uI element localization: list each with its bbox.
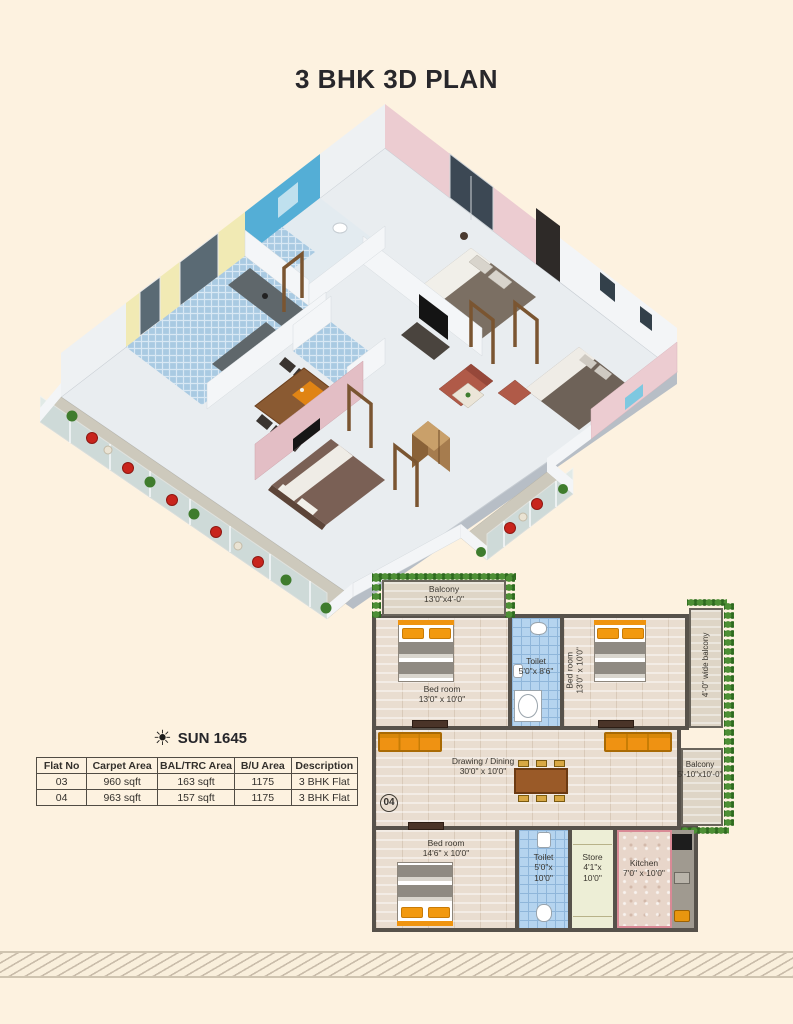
- table-row: 03 960 sqft 163 sqft 1175 3 BHK Flat: [37, 774, 358, 790]
- bed-bedroom2: [594, 620, 646, 682]
- floor-plan-3d-illustration: [40, 100, 720, 640]
- kitchen-stove: [672, 834, 692, 850]
- label-toilet1: Toilet 5'0"x 8'6": [510, 656, 562, 677]
- label-toilet2: Toilet 5'0"x 10'0": [519, 852, 568, 883]
- col-bal-trc-area: BAL/TRC Area: [158, 758, 235, 774]
- sofa-left: [378, 732, 442, 752]
- label-balcony-top: Balcony 13'0"x4'-0": [382, 584, 506, 605]
- kitchen-basket: [674, 910, 690, 922]
- hedge-right-row: [687, 598, 727, 607]
- cell-bu-area: 1175: [235, 790, 292, 806]
- hedge-top-left: [372, 574, 381, 618]
- area-table: Flat No Carpet Area BAL/TRC Area B/U Are…: [36, 757, 358, 806]
- label-store: Store 4'1"x 10'0": [572, 852, 613, 883]
- sun-label: SUN 1645: [178, 730, 247, 747]
- label-bedroom2: Bed room 13'0" x 10'0": [565, 624, 586, 716]
- toilet1-wc: [530, 622, 547, 635]
- toilet1-bathtub: [514, 690, 542, 722]
- cell-bal-trc-area: 163 sqft: [158, 774, 235, 790]
- label-drawing-dining: Drawing / Dining 30'0" x 10'0": [408, 756, 558, 777]
- hedge-top-right: [505, 574, 515, 618]
- table-header-row: Flat No Carpet Area BAL/TRC Area B/U Are…: [37, 758, 358, 774]
- floor-plan-2d: 04 Balcony 13'0"x4'-0" Bed room 13'0" x …: [372, 572, 740, 936]
- hedge-right-column: [724, 602, 734, 826]
- cell-carpet-area: 963 sqft: [87, 790, 158, 806]
- cell-bu-area: 1175: [235, 774, 292, 790]
- sun-icon: ☀: [153, 728, 172, 749]
- cell-flat-no: 03: [37, 774, 87, 790]
- tv-unit-bedroom1: [412, 720, 448, 728]
- toilet2-wc: [536, 904, 552, 922]
- label-balcony2: Balcony 5'-10"x10'-0": [670, 760, 730, 780]
- store-shelf: [573, 916, 612, 917]
- bed-bedroom1: [398, 620, 454, 682]
- col-bu-area: B/U Area: [235, 758, 292, 774]
- cell-flat-no: 04: [37, 790, 87, 806]
- store-shelf: [573, 844, 612, 845]
- tv-unit-bedroom3: [408, 822, 444, 830]
- kitchen-floor: [617, 830, 672, 928]
- col-carpet-area: Carpet Area: [87, 758, 158, 774]
- dining-chair: [554, 795, 565, 802]
- tv-unit-bedroom2: [598, 720, 634, 728]
- cell-description: 3 BHK Flat: [291, 774, 357, 790]
- table-row: 04 963 sqft 157 sqft 1175 3 BHK Flat: [37, 790, 358, 806]
- cell-description: 3 BHK Flat: [291, 790, 357, 806]
- brochure-page: 3 BHK 3D PLAN: [0, 0, 793, 1024]
- cell-bal-trc-area: 157 sqft: [158, 790, 235, 806]
- page-title: 3 BHK 3D PLAN: [0, 64, 793, 95]
- cell-carpet-area: 960 sqft: [87, 774, 158, 790]
- sun-legend: ☀ SUN 1645: [130, 728, 270, 749]
- kitchen-sink: [674, 872, 690, 884]
- sofa-right: [604, 732, 672, 752]
- toilet2-sink: [537, 832, 551, 848]
- label-bedroom1: Bed room 13'0" x 10'0": [388, 684, 496, 705]
- flat-number-badge: 04: [380, 794, 398, 812]
- bed-bedroom3: [397, 862, 453, 926]
- label-balcony-right: 4'-0" wide balcony: [701, 612, 711, 718]
- dining-chair: [518, 795, 529, 802]
- decorative-hatch-band: [0, 951, 793, 978]
- col-description: Description: [291, 758, 357, 774]
- dining-chair: [536, 795, 547, 802]
- label-kitchen: Kitchen 7'0" x 10'0": [613, 858, 675, 879]
- label-bedroom3: Bed room 14'6" x 10'0": [394, 838, 498, 859]
- col-flat-no: Flat No: [37, 758, 87, 774]
